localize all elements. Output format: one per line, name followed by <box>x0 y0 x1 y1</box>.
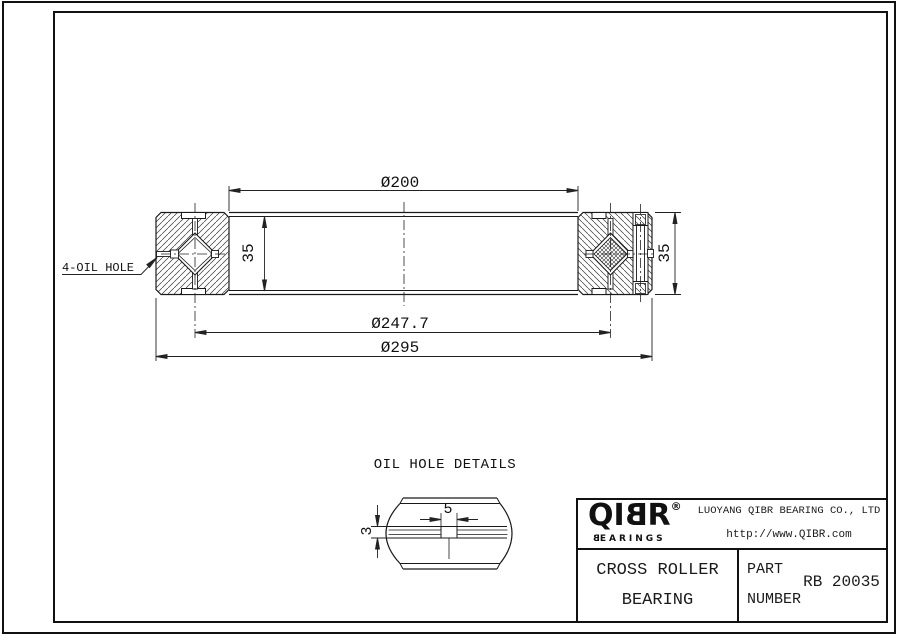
dim-width-left-label: 35 <box>242 237 262 269</box>
oil-hole-callout-label: 4-OIL HOLE <box>62 261 134 275</box>
detail-dim-width-label: 5 <box>438 503 458 516</box>
part-number-value: RB 20035 <box>794 572 889 592</box>
company-name: LUOYANG QIBR BEARING CO., LTD <box>696 505 882 518</box>
product-name-line1: CROSS ROLLER <box>596 556 718 586</box>
product-name-cell: CROSS ROLLER BEARING <box>578 550 739 621</box>
dim-outer-label: Ø295 <box>360 341 440 355</box>
dim-pitch-label: Ø247.7 <box>355 317 445 331</box>
bearing-bore-band <box>229 213 578 295</box>
dim-width-right-label: 35 <box>658 237 678 269</box>
bearing-section-right <box>578 213 654 295</box>
qibr-logo-subtitle: BEARINGS <box>590 534 682 544</box>
detail-dim-depth-label: 3 <box>358 515 378 547</box>
qibr-logo-wordmark: QIBR® <box>588 501 682 531</box>
registered-trademark-symbol: ® <box>671 500 682 513</box>
qibr-logo: QIBR® BEARINGS <box>588 501 682 544</box>
company-website: http://www.QIBR.com <box>696 529 882 542</box>
title-block-bottom-row: CROSS ROLLER BEARING PART NUMBER RB 2003… <box>578 550 886 621</box>
drawing-sheet: Ø200 Ø247.7 Ø295 35 35 4-OIL HOLE OIL HO… <box>0 0 900 636</box>
oil-hole-detail-title: OIL HOLE DETAILS <box>345 457 545 473</box>
part-number-cell: PART NUMBER RB 20035 <box>739 550 886 621</box>
part-number-label: PART NUMBER <box>747 555 801 615</box>
dim-bore-label: Ø200 <box>360 176 440 190</box>
bearing-section-left <box>156 213 229 295</box>
product-name-line2: BEARING <box>622 586 693 616</box>
company-info: LUOYANG QIBR BEARING CO., LTD http://www… <box>696 505 882 542</box>
